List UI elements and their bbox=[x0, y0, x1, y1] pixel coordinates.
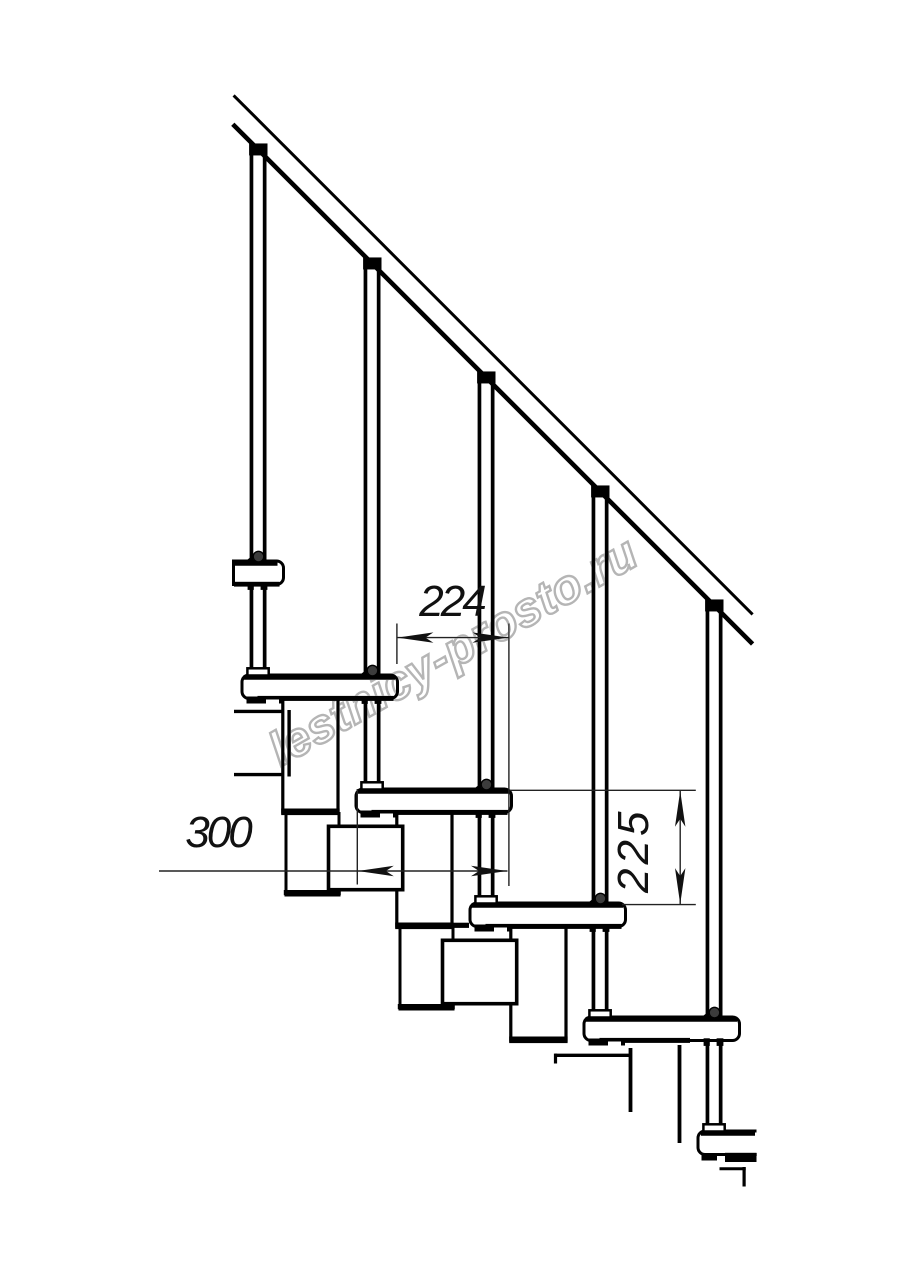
svg-text:lestnicy-prosto.ru: lestnicy-prosto.ru bbox=[260, 526, 647, 776]
svg-text:300: 300 bbox=[185, 808, 253, 857]
svg-text:225: 225 bbox=[609, 808, 658, 894]
